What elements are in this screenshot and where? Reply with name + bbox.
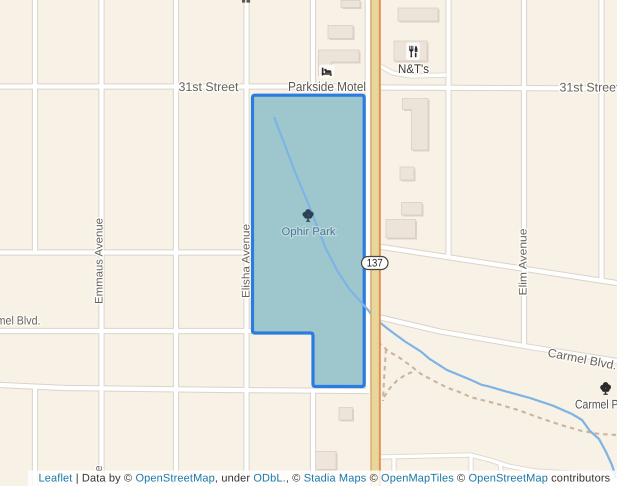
svg-text:137: 137 — [367, 258, 383, 270]
svg-text:31st Street: 31st Street — [560, 81, 617, 95]
svg-text:Carmel Blvd.: Carmel Blvd. — [0, 314, 41, 328]
svg-text:Emmaus Avenue: Emmaus Avenue — [94, 218, 106, 304]
svg-text:Parkside Motel: Parkside Motel — [288, 79, 366, 94]
svg-text:Leaflet | Data by © OpenStreet: Leaflet | Data by © OpenStreetMap, under… — [39, 473, 611, 485]
svg-text:N&T's: N&T's — [398, 62, 429, 76]
svg-text:31st Street: 31st Street — [179, 80, 240, 94]
svg-text:Ophir Park: Ophir Park — [282, 226, 337, 238]
svg-text:Carmel Park: Carmel Park — [575, 398, 617, 412]
svg-text:Elisha Avenue: Elisha Avenue — [241, 224, 253, 298]
svg-text:Elim Avenue: Elim Avenue — [518, 229, 530, 296]
